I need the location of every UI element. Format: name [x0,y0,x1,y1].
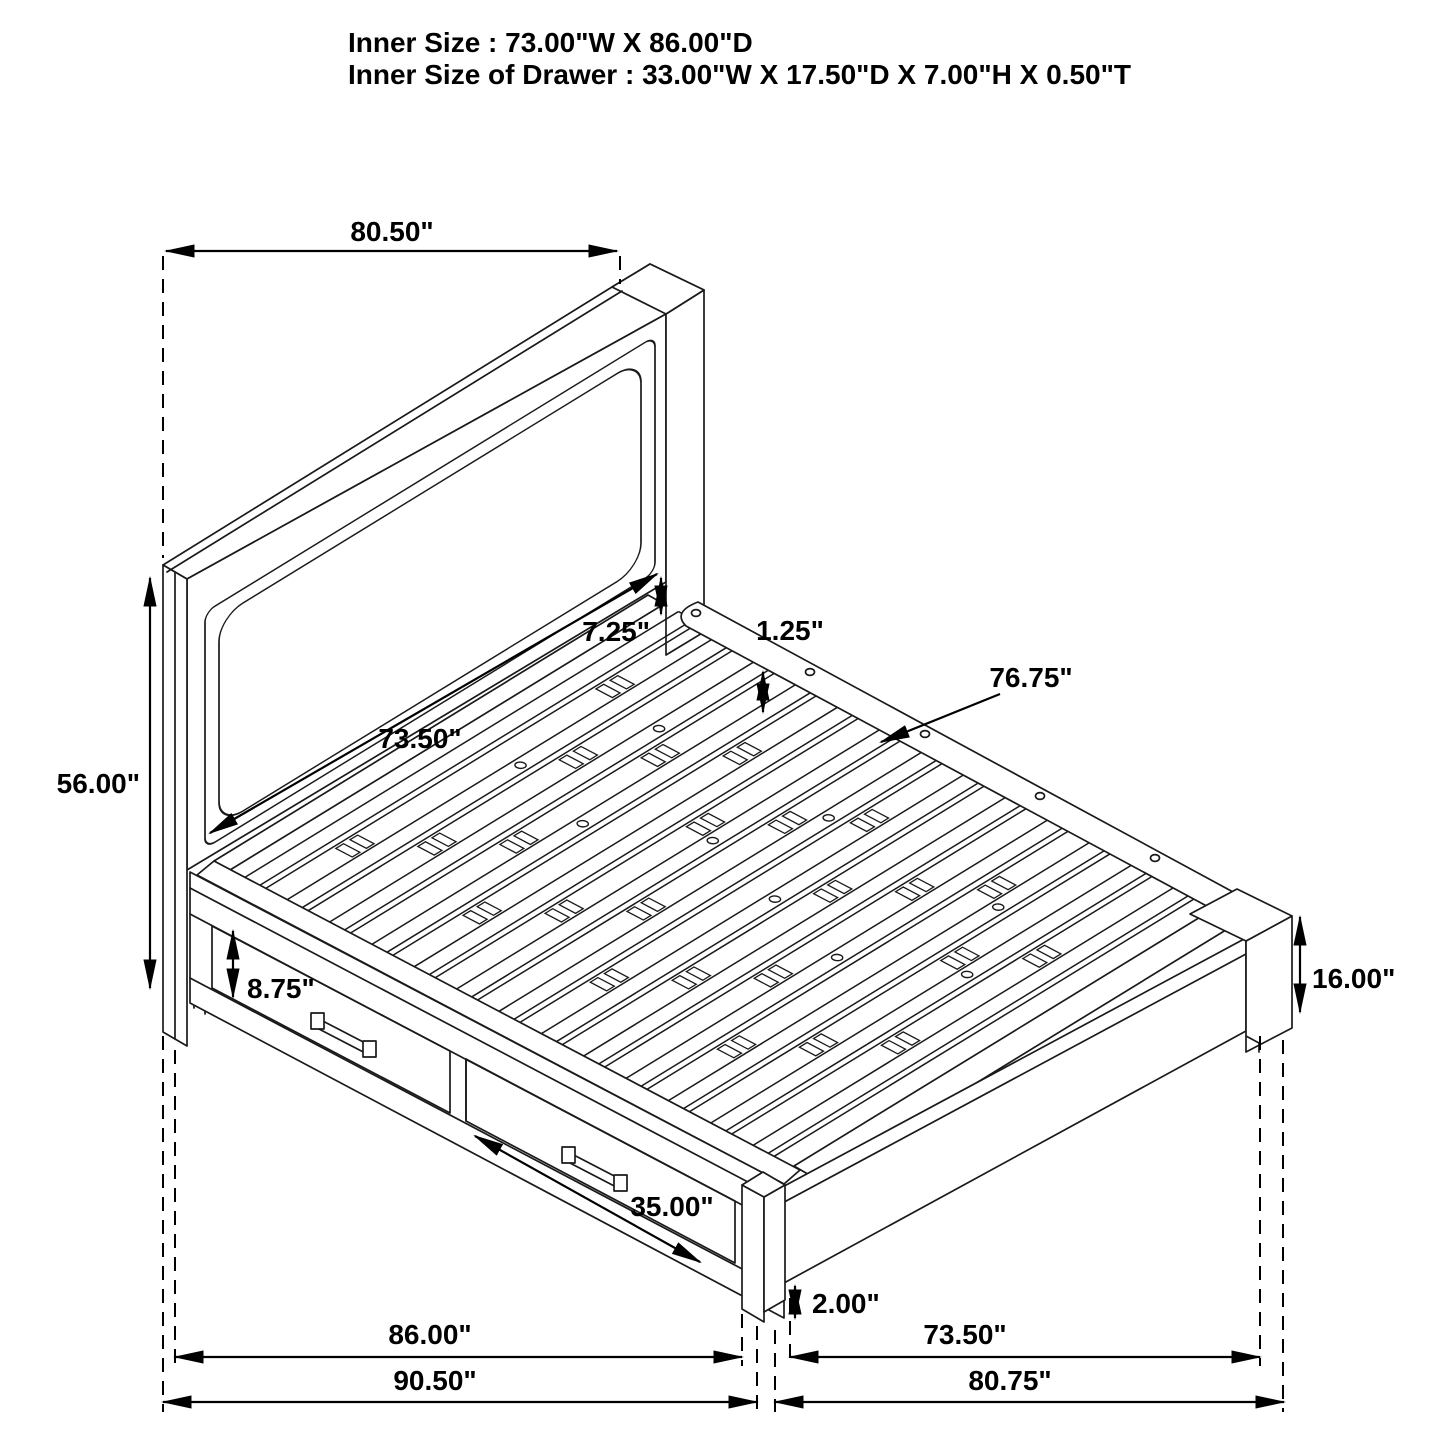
dim-label-panel-to-rail-gap: 7.25" [582,616,650,647]
drawing-title: Inner Size : 73.00"W X 86.00"D Inner Siz… [348,27,1131,90]
dim-label-footboard-height: 16.00" [1312,963,1395,994]
dim-label-floor-clearance: 2.00" [812,1288,880,1319]
headboard-right-post [666,290,704,655]
dim-label-drawer-front-height: 8.75" [247,973,315,1004]
dim-side-inner-length: 86.00" [175,1319,742,1357]
dim-label-headboard-inner-width: 73.50" [378,723,461,754]
dim-headboard-width: 80.50" [166,216,617,251]
dim-label-slat-thickness: 1.25" [756,615,824,646]
dim-floor-clearance: 2.00" [795,1286,880,1319]
dim-label-side-outer-length: 90.50" [393,1365,476,1396]
technical-drawing-page: 80.50" 56.00" 73.50" 7.25" 1.25" 76.75" … [0,0,1445,1445]
dim-label-headboard-width: 80.50" [350,216,433,247]
dim-side-outer-length: 90.50" [163,1365,757,1402]
dim-headboard-height: 56.00" [57,578,150,988]
dim-label-slat-length: 76.75" [989,662,1072,693]
dim-label-drawer-width: 35.00" [630,1191,713,1222]
dim-label-foot-outer-width: 80.75" [968,1365,1051,1396]
dim-foot-inner-width: 73.50" [790,1319,1260,1357]
dim-footboard-height: 16.00" [1300,917,1395,1012]
dim-label-side-inner-length: 86.00" [388,1319,471,1350]
dim-foot-outer-width: 80.75" [775,1365,1284,1402]
front-corner-post [742,1172,785,1322]
dim-label-foot-inner-width: 73.50" [923,1319,1006,1350]
dim-slat-length: 76.75" [881,662,1073,742]
dim-label-headboard-height: 56.00" [57,768,140,799]
right-side-rail [681,602,1246,925]
bed-dimension-diagram: 80.50" 56.00" 73.50" 7.25" 1.25" 76.75" … [0,0,1445,1445]
title-line-1: Inner Size : 73.00"W X 86.00"D [348,27,753,58]
title-line-2: Inner Size of Drawer : 33.00"W X 17.50"D… [348,59,1131,90]
